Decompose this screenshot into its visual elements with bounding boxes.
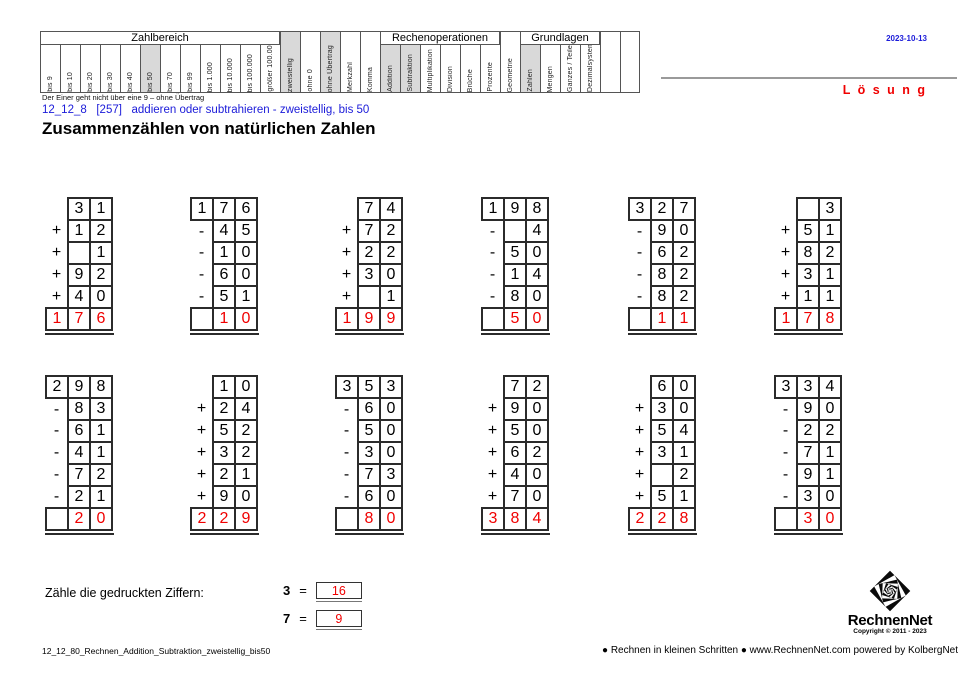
digit-cell: 7: [358, 220, 380, 242]
header-column-label: bis 70: [164, 69, 178, 92]
digit-cell: 7: [673, 198, 695, 220]
result-cell: 8: [504, 508, 526, 530]
digit-cell: 1: [191, 198, 213, 220]
header-group-columns: bis 9bis 10bis 20bis 30bis 40bis 50bis 7…: [40, 45, 280, 93]
result-cell: [336, 508, 358, 530]
count-value-box: 16: [316, 582, 362, 599]
header-column-label: Merkzahl: [344, 59, 358, 92]
count-box-wrap: 9: [316, 610, 362, 630]
operator-cell: -: [46, 486, 68, 508]
digit-cell: 2: [235, 420, 257, 442]
digit-cell: 2: [90, 464, 112, 486]
result-cell: 1: [213, 308, 235, 330]
header-column-label: Brüche: [464, 66, 478, 92]
date-label: 2023-10-13: [886, 34, 927, 43]
digit-cell: 3: [629, 198, 651, 220]
digit-cell: 8: [90, 376, 112, 398]
header-column-bis-40: bis 40: [120, 45, 140, 93]
operator-cell: -: [46, 464, 68, 486]
digit-cell: 5: [213, 286, 235, 308]
operator-cell: -: [629, 286, 651, 308]
operator-cell: -: [46, 398, 68, 420]
result-cell: 2: [629, 508, 651, 530]
digit-cell: 6: [651, 376, 673, 398]
result-double-underline: [335, 533, 404, 535]
solution-label: L ö s u n g: [843, 83, 927, 97]
digit-cell: 9: [213, 486, 235, 508]
operator-cell: +: [191, 398, 213, 420]
digit-cell: 1: [235, 464, 257, 486]
result-double-underline: [45, 333, 114, 335]
operator-cell: +: [775, 264, 797, 286]
operator-cell: +: [336, 264, 358, 286]
operator-cell: +: [629, 464, 651, 486]
digit-cell: 7: [797, 442, 819, 464]
result-double-underline: [190, 333, 259, 335]
digit-cell: 6: [213, 264, 235, 286]
digit-cell: 7: [358, 198, 380, 220]
header-column-label: bis 30: [104, 69, 118, 92]
operator-cell: +: [629, 420, 651, 442]
digit-cell: 1: [90, 242, 112, 264]
header-column-label: bis 10: [64, 69, 78, 92]
header-column-label: bis 9: [44, 73, 58, 92]
result-cell: 2: [213, 508, 235, 530]
digit-cell: 4: [380, 198, 402, 220]
result-cell: 0: [90, 508, 112, 530]
header-column-label: ohne Übertrag: [324, 42, 338, 92]
digit-cell: 0: [673, 220, 695, 242]
digit-cell: 6: [235, 198, 257, 220]
operator-cell: -: [775, 420, 797, 442]
result-double-underline: [481, 333, 550, 335]
digit-cell: 0: [380, 264, 402, 286]
digit-cell: 1: [213, 376, 235, 398]
result-cell: 9: [358, 308, 380, 330]
operator-cell: +: [336, 286, 358, 308]
header-column-bis-100-000: bis 100.000: [240, 45, 260, 93]
digit-cell: 9: [68, 376, 90, 398]
digit-cell: 3: [651, 398, 673, 420]
problem-grid: 353-60-50-30-73-6080: [335, 375, 403, 531]
digit-cell: 2: [235, 442, 257, 464]
digit-cell: 3: [380, 464, 402, 486]
digit-cell: [68, 242, 90, 264]
worksheet-subtitle: 12_12_8 [257] addieren oder subtrahieren…: [42, 104, 369, 116]
header-column-bis-70: bis 70: [160, 45, 180, 93]
result-double-underline: [628, 533, 697, 535]
digit-cell: 4: [504, 464, 526, 486]
digit-cell: 2: [819, 420, 841, 442]
header-column-ganzes-teile: Ganzes / Teile: [560, 45, 580, 93]
header-column-bis-1-000: bis 1.000: [200, 45, 220, 93]
header-column-label: Dezimalsystem: [584, 45, 598, 92]
result-cell: 8: [819, 308, 841, 330]
operator-cell: -: [336, 442, 358, 464]
operator-cell: -: [482, 220, 504, 242]
header-column-bis-10: bis 10: [60, 45, 80, 93]
result-cell: 1: [46, 308, 68, 330]
operator-cell: +: [191, 464, 213, 486]
header-column-label: bis 20: [84, 69, 98, 92]
result-cell: 0: [380, 508, 402, 530]
worksheet-page: Zahlbereichbis 9bis 10bis 20bis 30bis 40…: [0, 0, 963, 681]
problem-grid: 198-4-50-14-8050: [481, 197, 549, 331]
equals-sign: =: [299, 582, 307, 600]
digit-cell: 0: [90, 286, 112, 308]
header-column-label: Zahlen: [524, 66, 538, 92]
digit-cell: 3: [213, 442, 235, 464]
count-box-underline: [316, 629, 362, 631]
operator-cell: +: [482, 420, 504, 442]
operator-cell: +: [775, 220, 797, 242]
result-cell: 9: [380, 308, 402, 330]
header-column-bis-99: bis 99: [180, 45, 200, 93]
digit-cell: 6: [358, 486, 380, 508]
digit-cell: 5: [504, 420, 526, 442]
operator-cell: -: [775, 464, 797, 486]
empty-cell: [336, 198, 358, 220]
digit-cell: 3: [358, 264, 380, 286]
digit-cell: 1: [819, 464, 841, 486]
digit-cell: [797, 198, 819, 220]
digit-cell: 3: [358, 442, 380, 464]
result-cell: 7: [68, 308, 90, 330]
digit-cell: 1: [797, 286, 819, 308]
header-column-label: bis 1.000: [204, 59, 218, 92]
header-column-subtraktion: Subtraktion: [400, 45, 420, 93]
header-column-label: bis 50: [144, 69, 158, 92]
digit-cell: 5: [358, 376, 380, 398]
operator-cell: +: [482, 486, 504, 508]
result-double-underline: [45, 533, 114, 535]
digit-cell: 4: [213, 220, 235, 242]
operator-cell: +: [191, 420, 213, 442]
header-column-label: Prozente: [484, 59, 498, 92]
digit-cell: 1: [819, 286, 841, 308]
problem-12: 334-90-22-71-91-3030: [774, 375, 843, 535]
header-column-ohne-0: ohne 0: [300, 31, 320, 93]
problem-6: 3+51+82+31+11178: [774, 197, 843, 335]
header-column-ohne-bertrag: ohne Übertrag: [320, 31, 340, 93]
digit-cell: 4: [673, 420, 695, 442]
problem-8: 10+24+52+32+21+90229: [190, 375, 259, 535]
operator-cell: -: [191, 242, 213, 264]
operator-cell: +: [482, 442, 504, 464]
problem-2: 176-45-10-60-5110: [190, 197, 259, 335]
header-group-label: Rechenoperationen: [380, 31, 500, 45]
digit-cell: 9: [797, 398, 819, 420]
header-group-columns: AdditionSubtraktionMultiplikationDivisio…: [380, 45, 500, 93]
digit-cell: 1: [90, 442, 112, 464]
header-column-label: zweistellig: [284, 55, 298, 92]
digit-cell: 8: [797, 242, 819, 264]
digit-cell: 1: [482, 198, 504, 220]
digit-cell: 2: [673, 264, 695, 286]
operator-cell: -: [336, 398, 358, 420]
problem-4: 198-4-50-14-8050: [481, 197, 550, 335]
digit-cell: 8: [526, 198, 548, 220]
digit-cell: 0: [526, 464, 548, 486]
operator-cell: +: [482, 398, 504, 420]
result-cell: [46, 508, 68, 530]
problem-3: 74+72+22+30+1199: [335, 197, 404, 335]
digit-cell: 1: [819, 442, 841, 464]
operator-cell: -: [482, 242, 504, 264]
header-column-bis-30: bis 30: [100, 45, 120, 93]
problem-9: 353-60-50-30-73-6080: [335, 375, 404, 535]
header-column-prozente: Prozente: [480, 45, 500, 93]
header-column-zahlen: Zahlen: [520, 45, 540, 93]
digit-cell: 2: [90, 220, 112, 242]
digit-cell: 3: [651, 442, 673, 464]
header-column-label: bis 10.000: [224, 55, 238, 92]
digit-cell: 2: [673, 242, 695, 264]
logo-text: RechnenNet: [848, 613, 933, 628]
footer-right: ● Rechnen in kleinen Schritten ● www.Rec…: [602, 645, 958, 656]
digit-cell: 2: [673, 464, 695, 486]
operator-cell: +: [46, 286, 68, 308]
digit-cell: 0: [380, 442, 402, 464]
digit-cell: 3: [797, 376, 819, 398]
operator-cell: +: [191, 486, 213, 508]
digit-cell: 0: [819, 486, 841, 508]
problem-grid: 327-90-62-82-8211: [628, 197, 696, 331]
digit-cell: 6: [651, 242, 673, 264]
problem-1: 31+12+1+92+40176: [45, 197, 114, 335]
counting-item-7: 7=9: [283, 610, 362, 630]
operator-cell: +: [629, 486, 651, 508]
digit-cell: 0: [673, 376, 695, 398]
header-column-label: bis 40: [124, 69, 138, 92]
result-cell: 8: [673, 508, 695, 530]
digit-cell: [651, 464, 673, 486]
digit-cell: 5: [504, 242, 526, 264]
digit-cell: 2: [651, 198, 673, 220]
header-column-bis-50: bis 50: [140, 45, 160, 93]
digit-cell: 2: [673, 286, 695, 308]
problem-grid: 72+90+50+62+40+70384: [481, 375, 549, 531]
header-column-mengen: Mengen: [540, 45, 560, 93]
header-column-label: Addition: [384, 62, 398, 92]
digit-cell: 4: [68, 286, 90, 308]
digit-cell: 2: [797, 420, 819, 442]
digit-cell: 2: [358, 242, 380, 264]
result-double-underline: [190, 533, 259, 535]
operator-cell: -: [482, 286, 504, 308]
empty-cell: [482, 376, 504, 398]
rechnennet-logo: RechnenNet Copyright © 2011 - 2023: [842, 570, 938, 636]
problem-7: 298-83-61-41-72-2120: [45, 375, 114, 535]
equals-sign: =: [299, 610, 307, 628]
digit-cell: 0: [235, 376, 257, 398]
digit-cell: 3: [775, 376, 797, 398]
digit-cell: 8: [651, 264, 673, 286]
header-note: Der Einer geht nicht über eine 9 – ohne …: [42, 93, 204, 102]
header-group-label: Grundlagen: [520, 31, 600, 45]
digit-cell: 5: [651, 420, 673, 442]
problem-grid: 10+24+52+32+21+90229: [190, 375, 258, 531]
header-column-empty: [600, 31, 620, 93]
digit-cell: 1: [380, 286, 402, 308]
footer-website: www.RechnenNet.com powered by KolbergNet: [750, 645, 958, 656]
digit-cell: 2: [68, 486, 90, 508]
operator-cell: +: [46, 264, 68, 286]
operator-cell: +: [336, 220, 358, 242]
digit-cell: 0: [235, 486, 257, 508]
operator-cell: -: [629, 220, 651, 242]
empty-cell: [775, 198, 797, 220]
header-table: Zahlbereichbis 9bis 10bis 20bis 30bis 40…: [40, 31, 640, 93]
operator-cell: -: [191, 286, 213, 308]
digit-cell: [504, 220, 526, 242]
problem-grid: 60+30+54+31+2+51228: [628, 375, 696, 531]
result-cell: 3: [482, 508, 504, 530]
digit-cell: 2: [819, 242, 841, 264]
digit-cell: 7: [213, 198, 235, 220]
digit-cell: 4: [819, 376, 841, 398]
digit-cell: 5: [651, 486, 673, 508]
result-cell: 9: [235, 508, 257, 530]
header-column-br-che: Brüche: [460, 45, 480, 93]
digit-cell: 3: [90, 398, 112, 420]
digit-cell: 9: [504, 198, 526, 220]
result-cell: 4: [526, 508, 548, 530]
result-cell: [629, 308, 651, 330]
digit-cell: 9: [68, 264, 90, 286]
digit-cell: 2: [46, 376, 68, 398]
header-column-bis-10-000: bis 10.000: [220, 45, 240, 93]
digit-cell: 4: [526, 264, 548, 286]
footer-slogan: ● Rechnen in kleinen Schritten ●: [602, 645, 747, 656]
result-cell: [191, 308, 213, 330]
count-box-underline: [316, 601, 362, 603]
operator-cell: +: [191, 442, 213, 464]
problem-11: 60+30+54+31+2+51228: [628, 375, 697, 535]
problem-grid: 298-83-61-41-72-2120: [45, 375, 113, 531]
result-cell: [775, 508, 797, 530]
digit-cell: 1: [673, 442, 695, 464]
header-column-label: ohne 0: [304, 66, 318, 92]
header-column-zweistellig: zweistellig: [280, 31, 300, 93]
problem-grid: 74+72+22+30+1199: [335, 197, 403, 331]
digit-cell: 6: [68, 420, 90, 442]
header-column-multiplikation: Multiplikation: [420, 45, 440, 93]
problem-grid: 176-45-10-60-5110: [190, 197, 258, 331]
result-double-underline: [628, 333, 697, 335]
footer-filename: 12_12_80_Rechnen_Addition_Subtraktion_zw…: [42, 646, 270, 656]
operator-cell: +: [336, 242, 358, 264]
digit-cell: 7: [358, 464, 380, 486]
operator-cell: -: [775, 398, 797, 420]
digit-cell: 0: [673, 398, 695, 420]
empty-cell: [46, 198, 68, 220]
digit-cell: 5: [797, 220, 819, 242]
header-group-zahlbereich: Zahlbereichbis 9bis 10bis 20bis 30bis 40…: [40, 31, 280, 93]
digit-cell: 3: [819, 198, 841, 220]
result-cell: 1: [775, 308, 797, 330]
header-column-label: bis 100.000: [244, 51, 258, 92]
header-column-label: größer 100.000: [264, 45, 278, 92]
header-column-division: Division: [440, 45, 460, 93]
operator-cell: -: [629, 242, 651, 264]
result-double-underline: [335, 333, 404, 335]
result-cell: 0: [819, 508, 841, 530]
digit-cell: 0: [526, 486, 548, 508]
digit-cell: 3: [68, 198, 90, 220]
operator-cell: -: [336, 486, 358, 508]
digit-cell: 3: [797, 486, 819, 508]
counting-item-3: 3=16: [283, 582, 362, 602]
digit-cell: 0: [380, 486, 402, 508]
problem-grid: 334-90-22-71-91-3030: [774, 375, 842, 531]
digit-cell: 2: [213, 398, 235, 420]
header-column-dezimalsystem: Dezimalsystem: [580, 45, 600, 93]
result-cell: [482, 308, 504, 330]
problem-grid: 3+51+82+31+11178: [774, 197, 842, 331]
operator-cell: -: [775, 442, 797, 464]
digit-cell: 8: [504, 286, 526, 308]
digit-cell: 0: [380, 420, 402, 442]
operator-cell: -: [336, 420, 358, 442]
header-column-merkzahl: Merkzahl: [340, 31, 360, 93]
digit-cell: 1: [819, 220, 841, 242]
result-double-underline: [774, 333, 843, 335]
operator-cell: +: [775, 242, 797, 264]
digit-cell: 4: [235, 398, 257, 420]
result-cell: 1: [651, 308, 673, 330]
digit-cell: 1: [504, 264, 526, 286]
result-cell: 0: [235, 308, 257, 330]
operator-cell: -: [46, 420, 68, 442]
digit-cell: 2: [380, 242, 402, 264]
digit-cell: 3: [380, 376, 402, 398]
problem-grid: 31+12+1+92+40176: [45, 197, 113, 331]
digit-cell: 0: [526, 286, 548, 308]
count-digit: 7: [283, 610, 290, 628]
header-column-addition: Addition: [380, 45, 400, 93]
result-cell: 5: [504, 308, 526, 330]
empty-cell: [191, 376, 213, 398]
horizontal-divider: [661, 77, 957, 79]
header-column-geometrie: Geometrie: [500, 31, 520, 93]
result-cell: 1: [336, 308, 358, 330]
result-cell: 8: [358, 508, 380, 530]
digit-cell: 1: [213, 242, 235, 264]
empty-cell: [629, 376, 651, 398]
digit-cell: 0: [526, 398, 548, 420]
digit-cell: 0: [235, 242, 257, 264]
header-column-label: Division: [444, 63, 458, 92]
problem-10: 72+90+50+62+40+70384: [481, 375, 550, 535]
count-digit: 3: [283, 582, 290, 600]
operator-cell: -: [336, 464, 358, 486]
digit-cell: 9: [504, 398, 526, 420]
header-column-label: Komma: [364, 64, 378, 92]
digit-cell: 1: [90, 198, 112, 220]
header-column-label: Subtraktion: [404, 51, 418, 92]
digit-cell: 7: [68, 464, 90, 486]
count-value-box: 9: [316, 610, 362, 627]
header-column-label: Ganzes / Teile: [564, 45, 578, 92]
operator-cell: +: [46, 220, 68, 242]
digit-cell: 2: [213, 464, 235, 486]
digit-cell: 6: [358, 398, 380, 420]
digit-cell: 1: [235, 286, 257, 308]
header-column-label: Geometrie: [504, 55, 518, 92]
header-column-gr-er-100-000: größer 100.000: [260, 45, 280, 93]
digit-cell: 0: [819, 398, 841, 420]
